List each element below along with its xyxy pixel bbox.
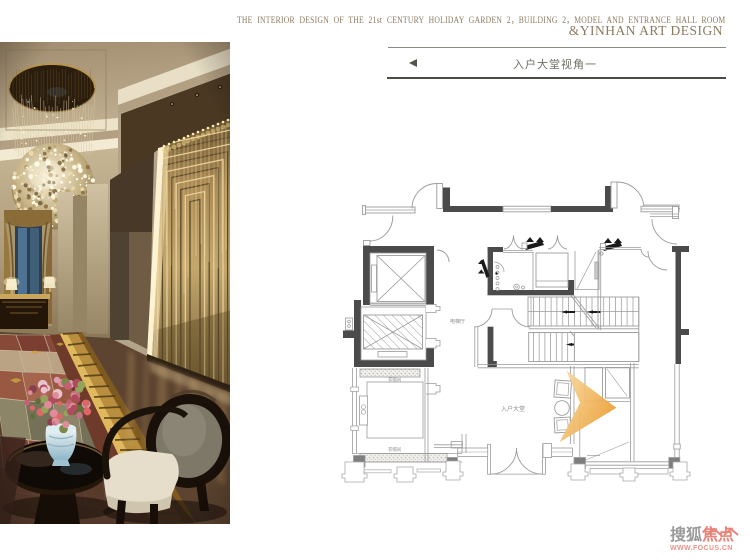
svg-text:衣帽间: 衣帽间 [388, 446, 401, 453]
svg-text:入户大堂: 入户大堂 [501, 405, 525, 413]
svg-text:电梯厅: 电梯厅 [450, 318, 465, 325]
